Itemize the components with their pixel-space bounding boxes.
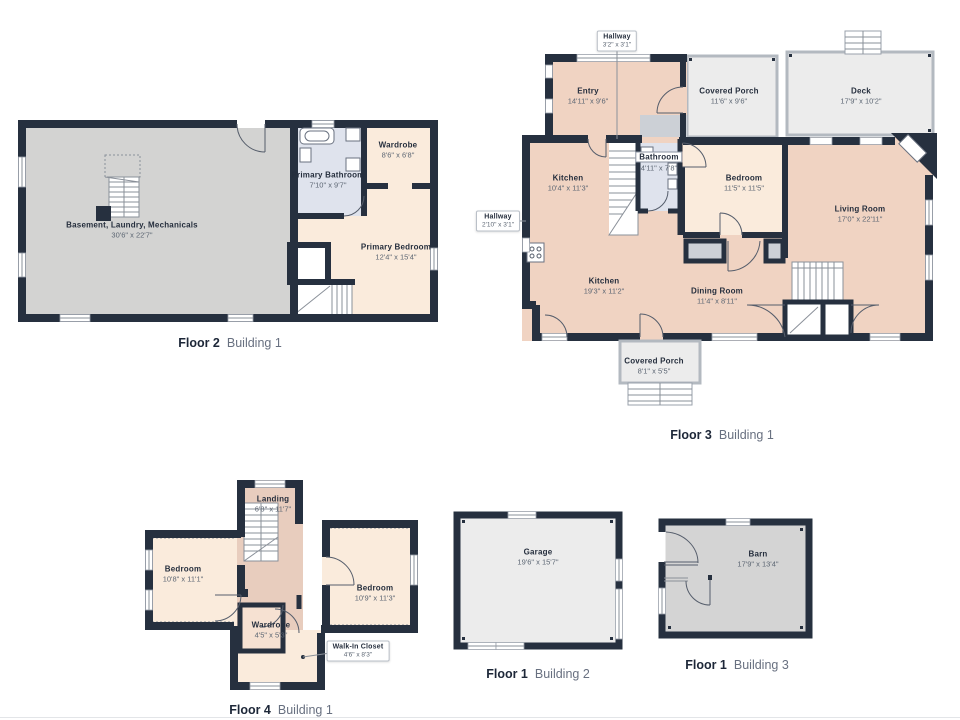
floorplan-floor4-building1-drawing — [140, 475, 430, 700]
plan-floor4-building1: Landing 6'8" x 11'7" Bedroom 10'8" x 11'… — [140, 475, 430, 720]
floorplan-floor2-building1-drawing — [14, 118, 448, 328]
callout-hallway-top: Hallway 3'2" x 3'1" — [597, 31, 637, 52]
floorplan-floor3-building1-drawing — [480, 15, 950, 415]
callout-hallway-left: Hallway 2'10" x 3'1" — [476, 211, 520, 232]
caption-floor1-building3: Floor 1Building 3 — [685, 658, 789, 672]
caption-floor1-building2: Floor 1Building 2 — [486, 667, 590, 681]
callout-walk-in-closet: Walk-In Closet 4'6" x 8'3" — [327, 641, 390, 662]
floorplan-barn-drawing — [658, 518, 813, 643]
plan-floor1-building3: Barn 17'9" x 13'4" Floor 1Building 3 — [658, 518, 813, 678]
plan-floor3-building1: Hallway 3'2" x 3'1" Entry 14'11" x 9'6" … — [480, 15, 950, 455]
plan-floor1-building2: Garage 19'6" x 15'7" Floor 1Building 2 — [453, 511, 623, 686]
caption-floor2-building1: Floor 2Building 1 — [178, 336, 282, 350]
floorplan-garage-drawing — [453, 511, 623, 656]
caption-floor3-building1: Floor 3Building 1 — [670, 428, 774, 442]
caption-floor4-building1: Floor 4Building 1 — [229, 703, 333, 717]
page-bottom-divider — [0, 717, 960, 718]
plan-floor2-building1: Basement, Laundry, Mechanicals 30'6" x 2… — [14, 118, 448, 358]
floorplan-page: { "colors": { "wall": "#26303f", "room_s… — [0, 0, 960, 720]
